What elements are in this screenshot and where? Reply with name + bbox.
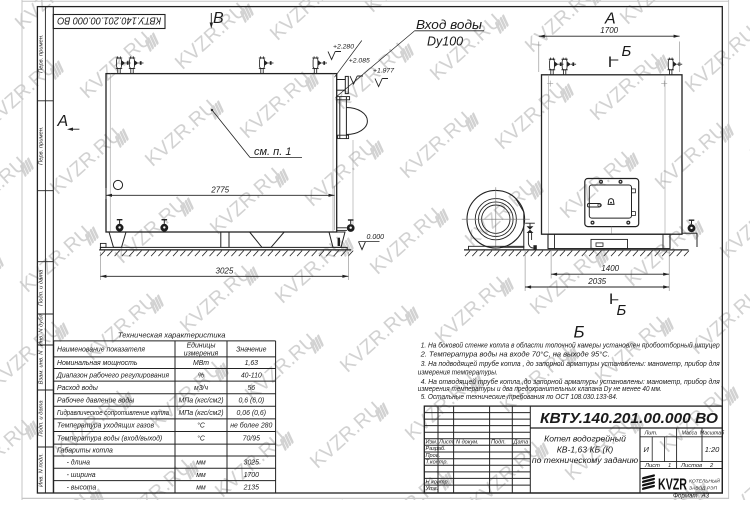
svg-text:Наименование показателя: Наименование показателя xyxy=(57,347,145,354)
svg-text:Листов: Листов xyxy=(680,463,702,469)
svg-text:КВ-1,63 КБ (К): КВ-1,63 КБ (К) xyxy=(557,444,614,454)
svg-text:В: В xyxy=(213,10,224,27)
svg-text:+1.977: +1.977 xyxy=(373,67,394,74)
svg-text:°С: °С xyxy=(197,434,206,442)
svg-text:А: А xyxy=(57,113,69,130)
svg-text:Температура воды (вход/выход): Температура воды (вход/выход) xyxy=(57,434,162,442)
svg-text:3025: 3025 xyxy=(244,460,259,467)
svg-text:Номинальная мощность: Номинальная мощность xyxy=(57,360,138,367)
svg-text:КВТУ.140.201.00.000 ВО: КВТУ.140.201.00.000 ВО xyxy=(57,15,161,26)
svg-text:Утв.: Утв. xyxy=(425,486,439,492)
svg-text:А: А xyxy=(604,11,616,28)
svg-text:N докум.: N докум. xyxy=(456,440,479,446)
svg-text:5. Остальные технические треб: 5. Остальные технические требования по О… xyxy=(421,392,618,401)
svg-text:1400: 1400 xyxy=(601,264,619,273)
svg-text:Лист: Лист xyxy=(644,463,660,469)
svg-text:1700: 1700 xyxy=(600,26,618,35)
svg-text:- высота: - высота xyxy=(57,484,96,491)
svg-text:- ширина: - ширина xyxy=(57,472,96,479)
svg-text:Б: Б xyxy=(622,43,632,60)
svg-text:Лит.: Лит. xyxy=(643,431,657,437)
svg-text:Формат: Формат xyxy=(673,493,698,500)
svg-text:2. Температура воды на входе: 2. Температура воды на входе 70°С, на вы… xyxy=(420,350,610,359)
svg-text:мм: мм xyxy=(196,472,206,479)
svg-text:Подп. и дата: Подп. и дата xyxy=(39,400,45,437)
svg-text:+2.280: +2.280 xyxy=(333,43,354,50)
svg-text:Б: Б xyxy=(617,302,627,319)
svg-text:56: 56 xyxy=(247,385,255,392)
svg-text:МПа (кгс/см2): МПа (кгс/см2) xyxy=(178,410,223,417)
svg-text:1,63: 1,63 xyxy=(245,360,259,367)
svg-text:Лист: Лист xyxy=(438,440,454,446)
svg-text:40-110: 40-110 xyxy=(241,372,262,379)
svg-text:Гидравлическое сопротивление к: Гидравлическое сопротивление котла xyxy=(57,409,169,417)
svg-text:°С: °С xyxy=(197,422,206,430)
svg-text:1. На боковой стенке котла в: 1. На боковой стенке котла в области топ… xyxy=(421,340,720,349)
svg-text:ЗАВОД РЭП: ЗАВОД РЭП xyxy=(689,485,718,491)
svg-text:Котел водогрейный: Котел водогрейный xyxy=(544,434,626,444)
svg-text:Пров.: Пров. xyxy=(426,453,441,459)
svg-text:Перв. примен.: Перв. примен. xyxy=(39,34,45,73)
svg-text:0,6 (6,0): 0,6 (6,0) xyxy=(238,398,264,405)
svg-text:Значение: Значение xyxy=(236,347,266,354)
svg-text:КВТУ.140.201.00.000 ВО: КВТУ.140.201.00.000 ВО xyxy=(540,410,718,427)
svg-text:0.000: 0.000 xyxy=(367,234,385,241)
svg-text:Т.контр.: Т.контр. xyxy=(426,459,449,465)
svg-text:Масштаб: Масштаб xyxy=(700,431,725,437)
svg-text:0,06 (0,6): 0,06 (0,6) xyxy=(237,410,267,417)
svg-text:мм: мм xyxy=(196,460,206,467)
svg-text:Взам. инв. N: Взам. инв. N xyxy=(39,350,45,385)
svg-text:Температура уходящих газов: Температура уходящих газов xyxy=(57,422,155,430)
svg-text:2775: 2775 xyxy=(210,185,229,194)
svg-text:Инв. N дубл.: Инв. N дубл. xyxy=(39,313,45,347)
svg-text:Dy100: Dy100 xyxy=(427,35,463,49)
svg-text:м3/ч: м3/ч xyxy=(194,385,208,392)
svg-text:по техническому заданию: по техническому заданию xyxy=(532,455,639,465)
svg-text:МПа (кгс/см2): МПа (кгс/см2) xyxy=(178,398,223,405)
svg-text:Инв. N подл.: Инв. N подл. xyxy=(39,453,45,487)
svg-text:3025: 3025 xyxy=(216,266,234,275)
svg-text:Н.контр.: Н.контр. xyxy=(426,479,450,485)
svg-text:2035: 2035 xyxy=(587,277,606,286)
svg-text:Единицы: Единицы xyxy=(187,341,216,349)
svg-text:Б: Б xyxy=(574,323,585,342)
svg-text:МВт: МВт xyxy=(193,360,209,367)
svg-text:И: И xyxy=(644,445,650,454)
svg-text:Техническая характеристика: Техническая характеристика xyxy=(118,331,226,340)
svg-text:Вход воды: Вход воды xyxy=(416,18,482,32)
svg-text:70/95: 70/95 xyxy=(243,435,260,442)
svg-text:Габариты котла: Габариты котла xyxy=(57,447,113,455)
svg-text:А3: А3 xyxy=(701,493,710,500)
svg-text:Масса: Масса xyxy=(682,431,697,437)
svg-text:см. п. 1: см. п. 1 xyxy=(254,146,291,158)
svg-text:2135: 2135 xyxy=(243,484,259,491)
svg-text:Подп.: Подп. xyxy=(491,440,506,446)
svg-text:KVZR: KVZR xyxy=(658,477,687,494)
svg-text:- длина: - длина xyxy=(57,459,90,467)
svg-text:+2.085: +2.085 xyxy=(349,58,370,65)
svg-text:Рабочее давление воды: Рабочее давление воды xyxy=(57,397,134,405)
svg-text:Диапазон рабочего регулировани: Диапазон рабочего регулирования xyxy=(56,371,169,379)
svg-text:1700: 1700 xyxy=(244,472,259,479)
svg-text:%: % xyxy=(198,372,204,379)
svg-text:Подп. и дата: Подп. и дата xyxy=(39,269,45,306)
svg-text:Перв. примен.: Перв. примен. xyxy=(39,126,45,165)
svg-text:1: 1 xyxy=(668,463,671,469)
svg-text:мм: мм xyxy=(196,484,206,491)
svg-text:Разраб.: Разраб. xyxy=(426,446,446,452)
svg-text:Расход воды: Расход воды xyxy=(57,384,98,392)
svg-text:измерения: измерения xyxy=(184,350,219,357)
svg-text:Дата: Дата xyxy=(513,440,529,446)
svg-text:не более 280: не более 280 xyxy=(230,422,272,430)
svg-text:Изм.: Изм. xyxy=(426,440,438,446)
svg-text:1:20: 1:20 xyxy=(705,445,720,454)
svg-text:измерения температуры.: измерения температуры. xyxy=(418,367,498,376)
